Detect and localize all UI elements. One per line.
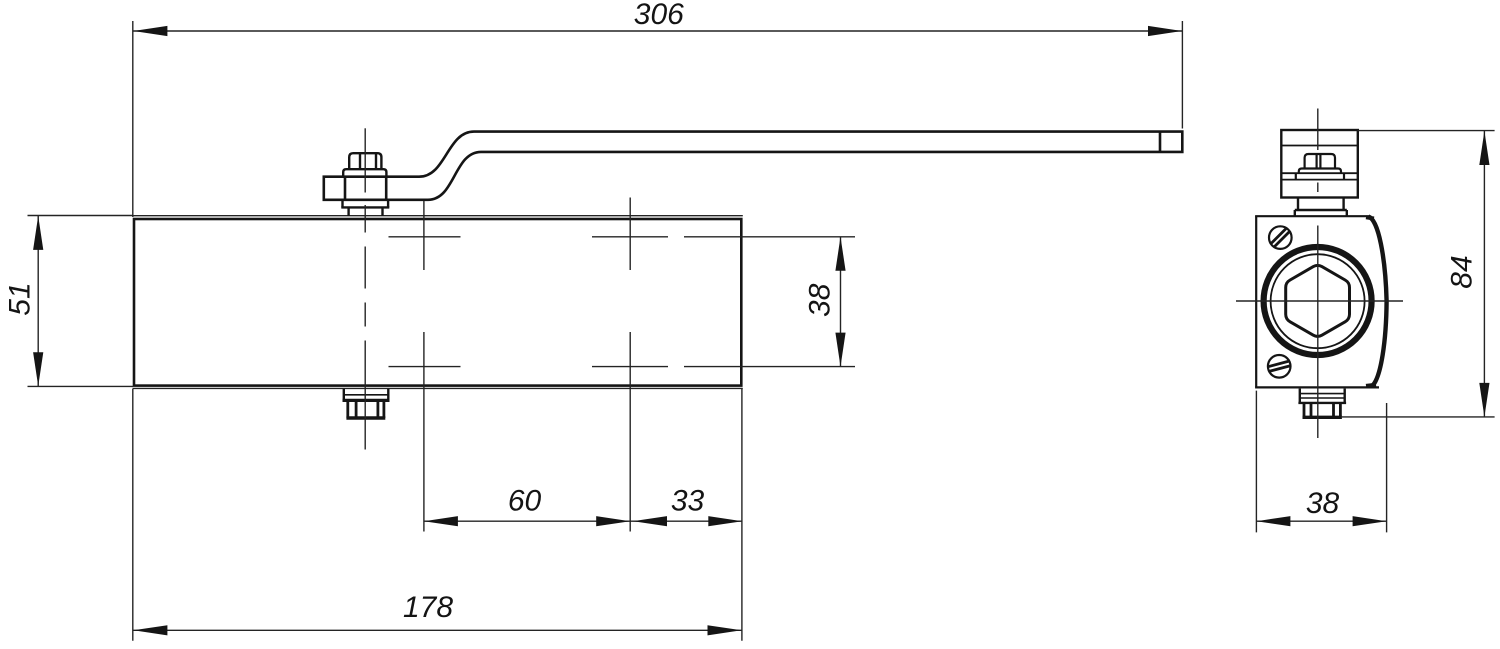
- svg-text:51: 51: [4, 282, 37, 315]
- svg-text:84: 84: [1445, 255, 1478, 288]
- svg-text:306: 306: [634, 0, 684, 31]
- svg-text:38: 38: [804, 283, 837, 317]
- svg-text:33: 33: [671, 485, 705, 518]
- svg-text:60: 60: [508, 485, 542, 518]
- svg-text:38: 38: [1306, 487, 1340, 520]
- svg-text:178: 178: [403, 591, 453, 624]
